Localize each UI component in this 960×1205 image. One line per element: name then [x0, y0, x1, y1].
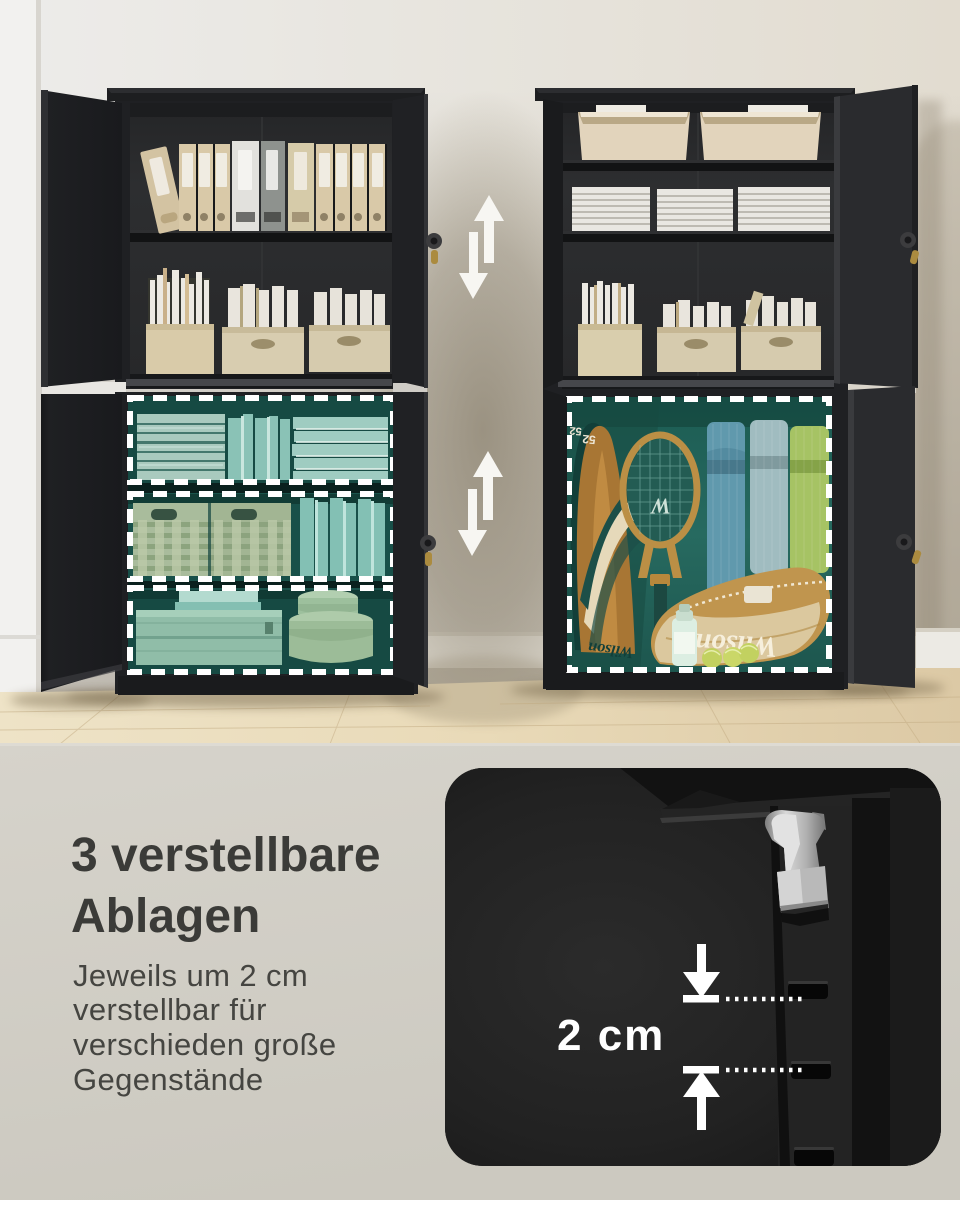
svg-text:verstellbar für: verstellbar für [73, 992, 267, 1027]
svg-text:2 cm: 2 cm [557, 1011, 665, 1060]
svg-text:W: W [650, 494, 671, 519]
svg-text:3 verstellbare: 3 verstellbare [71, 829, 381, 882]
svg-text:verschieden große: verschieden große [73, 1027, 337, 1062]
svg-text:Gegenstände: Gegenstände [73, 1062, 264, 1097]
svg-text:Jeweils um 2 cm: Jeweils um 2 cm [73, 958, 308, 993]
svg-text:52: 52 [581, 432, 596, 447]
svg-text:Ablagen: Ablagen [71, 890, 260, 943]
